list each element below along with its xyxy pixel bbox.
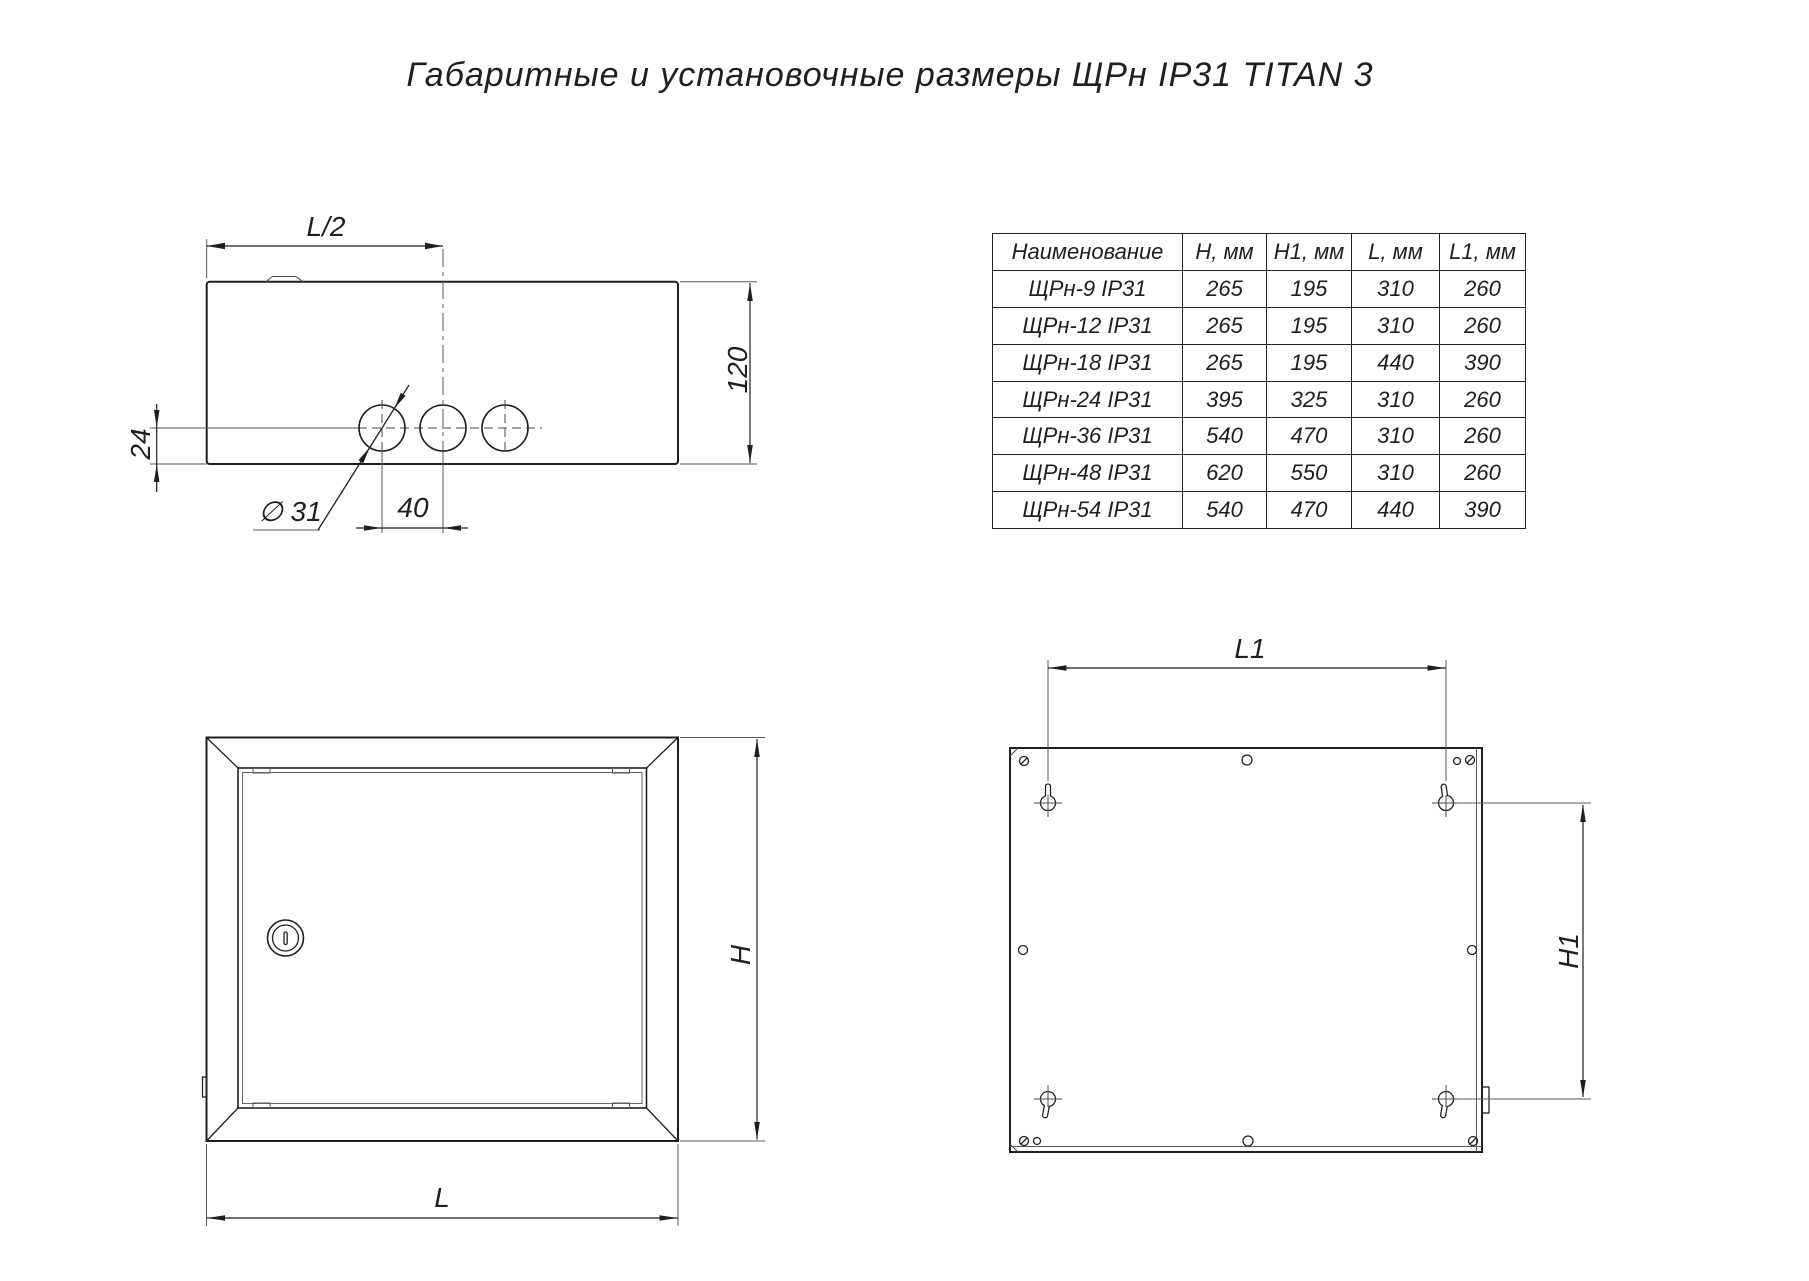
arrowhead	[207, 1215, 225, 1221]
cell-l1: 260	[1440, 381, 1526, 418]
table-header-row: Наименование H, мм H1, мм L, мм L1, мм	[993, 234, 1526, 271]
cell-h1: 195	[1267, 307, 1352, 344]
col-header-l1: L1, мм	[1440, 234, 1526, 271]
cell-name: ЩРн-9 IP31	[993, 270, 1183, 307]
arrowhead	[1428, 665, 1446, 671]
cell-l: 310	[1352, 418, 1440, 455]
dimensions-table: Наименование H, мм H1, мм L, мм L1, мм Щ…	[992, 233, 1526, 529]
dim-label-hole-spacing: 40	[397, 492, 429, 523]
dim-label-hole-diameter: ∅ 31	[258, 496, 321, 527]
arrowhead	[154, 410, 160, 428]
col-header-l: L, мм	[1352, 234, 1440, 271]
front-view-frame	[207, 738, 679, 1142]
cell-name: ЩРн-24 IP31	[993, 381, 1183, 418]
top-view-drawing: L/2 120 24 40 ∅ 31	[125, 211, 757, 533]
dim-label-mount-width: L1	[1234, 633, 1265, 664]
arrowhead	[660, 1215, 678, 1221]
table-row: ЩРн-48 IP31 620 550 310 260	[993, 455, 1526, 492]
cell-h: 265	[1183, 270, 1267, 307]
col-header-name: Наименование	[993, 234, 1183, 271]
cell-l1: 260	[1440, 455, 1526, 492]
arrowhead	[207, 243, 225, 249]
arrowhead	[1580, 1080, 1586, 1098]
arrowhead	[154, 465, 160, 483]
cell-h1: 550	[1267, 455, 1352, 492]
arrowhead	[444, 525, 462, 531]
cell-l: 310	[1352, 381, 1440, 418]
arrowhead	[747, 445, 753, 463]
cell-l: 440	[1352, 344, 1440, 381]
cell-l1: 260	[1440, 418, 1526, 455]
cell-name: ЩРн-54 IP31	[993, 492, 1183, 529]
cell-l1: 390	[1440, 492, 1526, 529]
cell-h1: 470	[1267, 492, 1352, 529]
arrowhead	[1049, 665, 1067, 671]
technical-drawing-canvas: L/2 120 24 40 ∅ 31	[0, 0, 1809, 1281]
arrowhead	[747, 284, 753, 302]
cell-l: 440	[1352, 492, 1440, 529]
cell-l1: 260	[1440, 270, 1526, 307]
cell-l: 310	[1352, 307, 1440, 344]
dim-label-hole-offset: 24	[125, 428, 156, 460]
arrowhead	[754, 739, 760, 757]
dim-label-mount-height: H1	[1553, 933, 1584, 969]
table-row: ЩРн-54 IP31 540 470 440 390	[993, 492, 1526, 529]
cell-h: 540	[1183, 418, 1267, 455]
front-view-drawing: H L	[203, 738, 766, 1227]
cell-h1: 195	[1267, 270, 1352, 307]
cell-h: 395	[1183, 381, 1267, 418]
dim-label-length: L	[434, 1182, 450, 1213]
table-row: ЩРн-12 IP31 265 195 310 260	[993, 307, 1526, 344]
side-tab	[1482, 1087, 1489, 1113]
arrowhead	[425, 243, 443, 249]
back-panel	[1010, 748, 1482, 1152]
cell-h: 265	[1183, 307, 1267, 344]
cell-h1: 325	[1267, 381, 1352, 418]
cell-h: 540	[1183, 492, 1267, 529]
cell-name: ЩРн-12 IP31	[993, 307, 1183, 344]
arrowhead	[364, 525, 382, 531]
table-row: ЩРн-9 IP31 265 195 310 260	[993, 270, 1526, 307]
cell-name: ЩРн-18 IP31	[993, 344, 1183, 381]
cell-l1: 260	[1440, 307, 1526, 344]
col-header-h: H, мм	[1183, 234, 1267, 271]
cell-h1: 470	[1267, 418, 1352, 455]
cell-l: 310	[1352, 270, 1440, 307]
cell-h1: 195	[1267, 344, 1352, 381]
arrowhead	[1580, 805, 1586, 823]
table-row: ЩРн-24 IP31 395 325 310 260	[993, 381, 1526, 418]
table-row: ЩРн-36 IP31 540 470 310 260	[993, 418, 1526, 455]
cell-l: 310	[1352, 455, 1440, 492]
cell-name: ЩРн-36 IP31	[993, 418, 1183, 455]
col-header-h1: H1, мм	[1267, 234, 1352, 271]
back-view-drawing: L1 H1	[1010, 633, 1591, 1152]
cell-name: ЩРн-48 IP31	[993, 455, 1183, 492]
cell-h: 620	[1183, 455, 1267, 492]
arrowhead	[754, 1122, 760, 1140]
cell-h: 265	[1183, 344, 1267, 381]
dim-label-depth: 120	[722, 346, 753, 393]
dim-label-height: H	[725, 944, 756, 965]
dim-label-half-length: L/2	[307, 211, 346, 242]
hinge-tab	[203, 1077, 207, 1097]
table-row: ЩРн-18 IP31 265 195 440 390	[993, 344, 1526, 381]
cell-l1: 390	[1440, 344, 1526, 381]
top-view-body	[207, 282, 678, 464]
